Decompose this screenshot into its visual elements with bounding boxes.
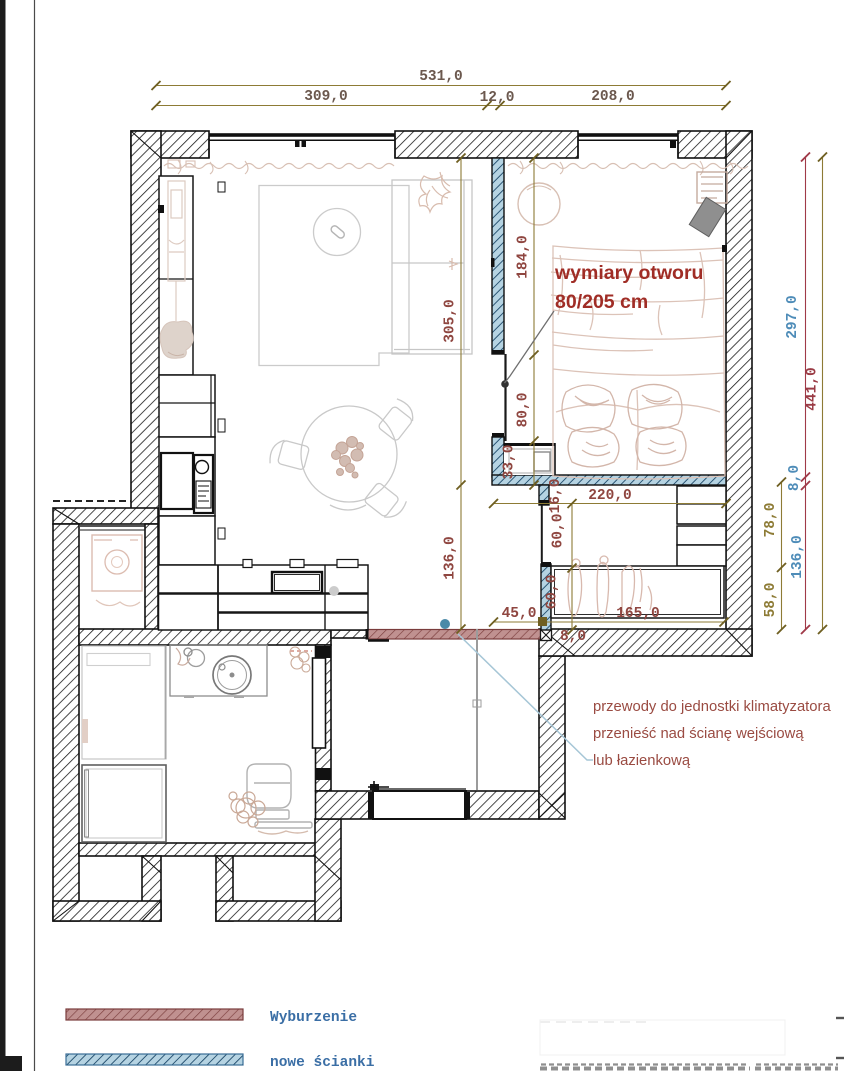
svg-text:220,0: 220,0 bbox=[588, 488, 632, 504]
svg-text:309,0: 309,0 bbox=[304, 89, 348, 105]
svg-text:8,0: 8,0 bbox=[787, 465, 803, 491]
svg-text:16,0: 16,0 bbox=[548, 479, 564, 514]
svg-text:58,0: 58,0 bbox=[763, 583, 779, 618]
svg-text:8,0: 8,0 bbox=[560, 629, 586, 645]
svg-text:wymiary otworu: wymiary otworu bbox=[554, 262, 703, 284]
svg-text:531,0: 531,0 bbox=[419, 69, 463, 85]
svg-text:80,0: 80,0 bbox=[516, 393, 532, 428]
svg-text:136,0: 136,0 bbox=[790, 535, 806, 579]
svg-text:Wyburzenie: Wyburzenie bbox=[270, 1010, 357, 1026]
svg-text:305,0: 305,0 bbox=[443, 299, 459, 343]
svg-text:60,0: 60,0 bbox=[545, 575, 561, 610]
svg-text:136,0: 136,0 bbox=[443, 536, 459, 580]
svg-text:208,0: 208,0 bbox=[591, 89, 635, 105]
svg-text:12,0: 12,0 bbox=[480, 90, 515, 106]
svg-text:78,0: 78,0 bbox=[763, 503, 779, 538]
svg-text:165,0: 165,0 bbox=[616, 606, 660, 622]
svg-text:33,0: 33,0 bbox=[502, 445, 518, 480]
svg-text:nowe ścianki: nowe ścianki bbox=[270, 1055, 375, 1071]
svg-text:60,0: 60,0 bbox=[551, 514, 567, 549]
svg-text:45,0: 45,0 bbox=[502, 606, 537, 622]
svg-text:441,0: 441,0 bbox=[805, 367, 821, 411]
svg-text:297,0: 297,0 bbox=[785, 295, 801, 339]
svg-text:184,0: 184,0 bbox=[516, 235, 532, 279]
svg-text:80/205 cm: 80/205 cm bbox=[555, 291, 648, 313]
svg-text:lub łazienkową: lub łazienkową bbox=[593, 753, 691, 769]
svg-text:przenieść nad ścianę wejściową: przenieść nad ścianę wejściową bbox=[593, 726, 804, 742]
svg-text:przewody do jednostki klimatyz: przewody do jednostki klimatyzatora bbox=[593, 699, 831, 715]
